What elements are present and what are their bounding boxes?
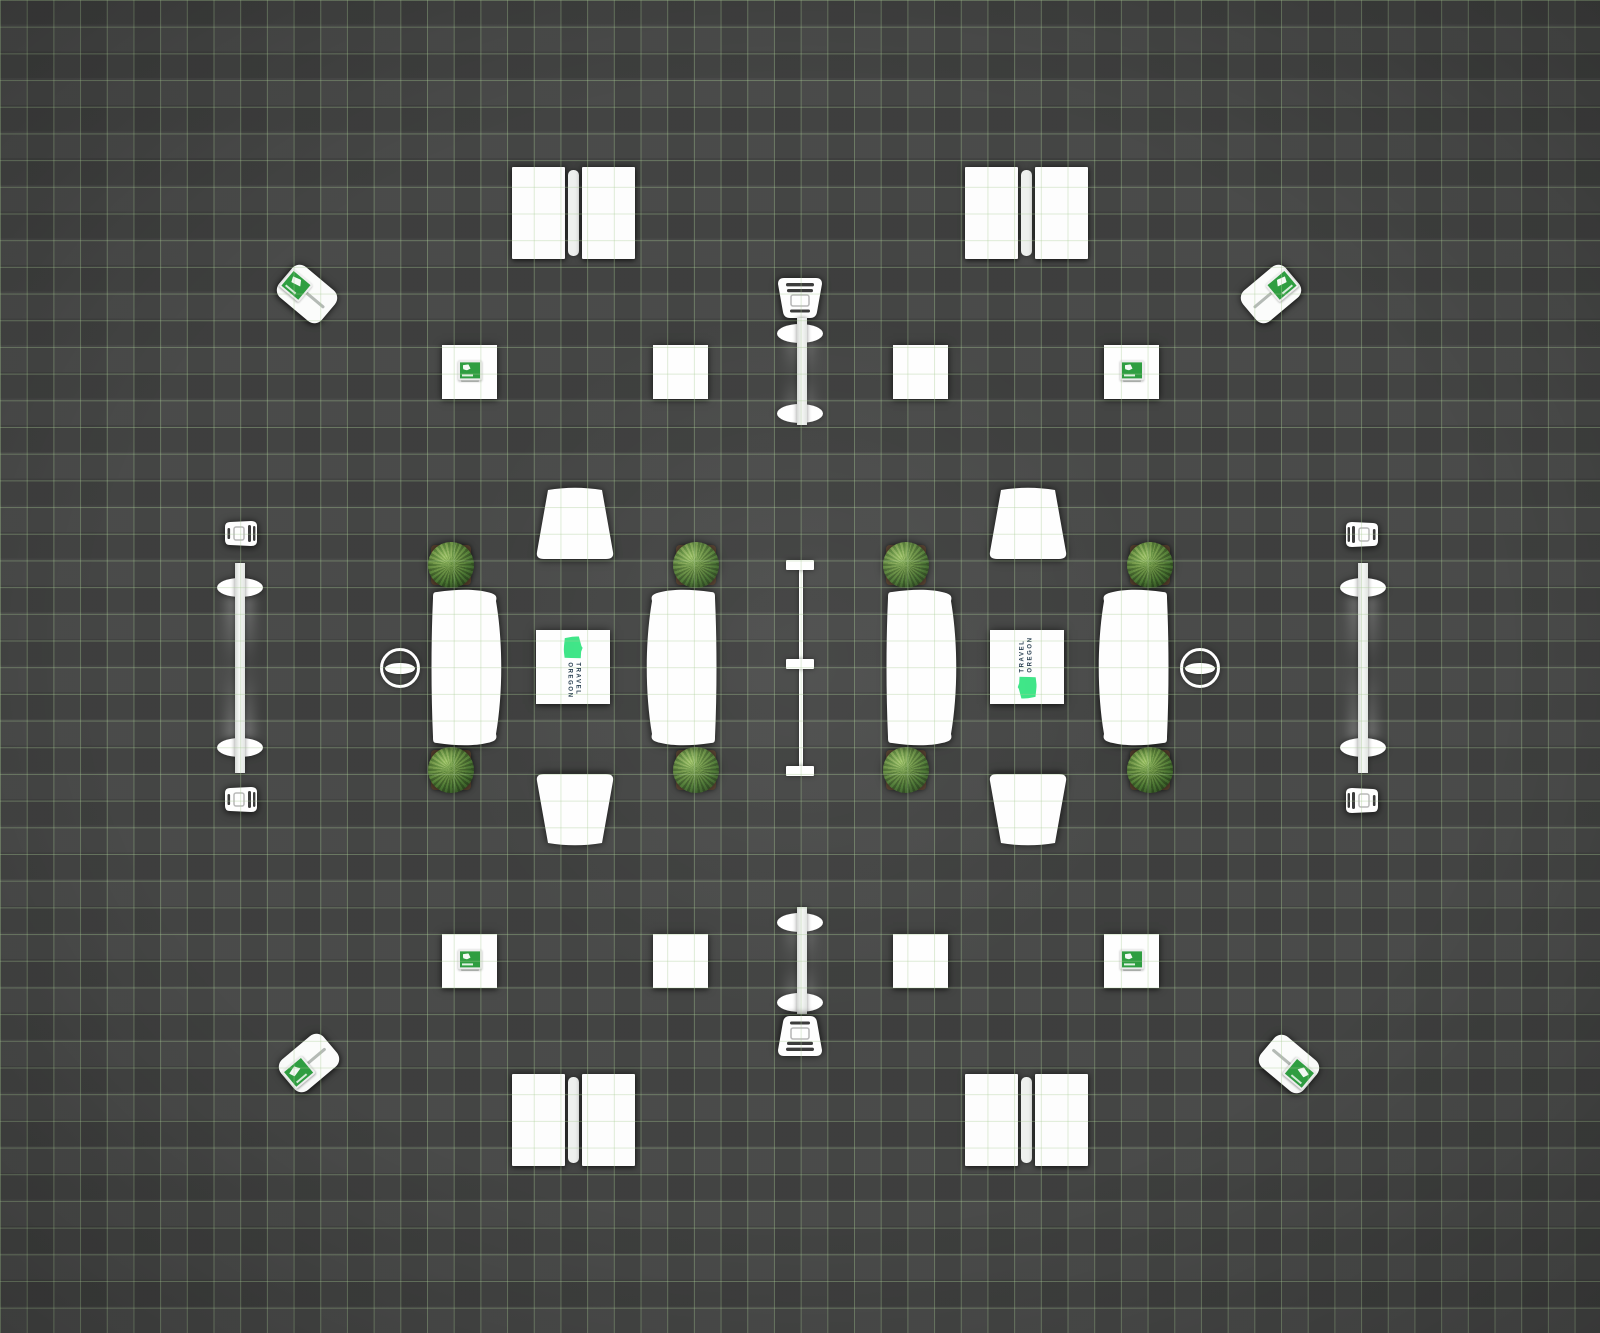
potted-bush[interactable] bbox=[1127, 542, 1173, 588]
bush-foliage bbox=[428, 747, 474, 793]
trapezoid-bench[interactable] bbox=[533, 773, 617, 845]
leaf-icon bbox=[1185, 663, 1215, 674]
divider-crossbar bbox=[786, 560, 814, 570]
potted-bush[interactable] bbox=[428, 542, 474, 588]
round-leaf-table[interactable] bbox=[1180, 648, 1220, 688]
display-panel-pair-top-right[interactable] bbox=[965, 167, 1088, 259]
travel-oregon-logo: TRAVEL OREGON bbox=[564, 636, 583, 698]
bush-foliage bbox=[673, 747, 719, 793]
side-chair[interactable] bbox=[1343, 521, 1383, 548]
logo-line2: OREGON bbox=[1027, 636, 1035, 672]
green-sign-icon bbox=[1120, 360, 1144, 380]
potted-bush[interactable] bbox=[883, 542, 929, 588]
bar-table[interactable] bbox=[1358, 563, 1368, 773]
logo-line1: TRAVEL bbox=[573, 662, 581, 698]
potted-bush[interactable] bbox=[428, 747, 474, 793]
display-panel bbox=[965, 1074, 1018, 1166]
display-panel bbox=[582, 167, 635, 259]
bar-table[interactable] bbox=[797, 318, 807, 425]
display-panel bbox=[1035, 167, 1088, 259]
logo-wordmark: TRAVEL OREGON bbox=[1020, 636, 1035, 672]
logo-wordmark: TRAVEL OREGON bbox=[566, 662, 581, 698]
bush-foliage bbox=[883, 747, 929, 793]
kiosk-stand-bottom-right[interactable] bbox=[1255, 1031, 1324, 1098]
kiosk-stand-bottom-left[interactable] bbox=[275, 1030, 344, 1097]
logo-line2: OREGON bbox=[566, 662, 574, 698]
potted-bush[interactable] bbox=[1127, 747, 1173, 793]
oregon-state-icon bbox=[1018, 676, 1037, 698]
logo-table[interactable]: TRAVEL OREGON bbox=[536, 630, 610, 704]
leaf-icon bbox=[385, 663, 415, 674]
curved-table[interactable] bbox=[645, 588, 721, 747]
travel-oregon-logo: TRAVEL OREGON bbox=[1018, 636, 1037, 698]
side-chair[interactable] bbox=[220, 786, 260, 813]
potted-bush[interactable] bbox=[673, 542, 719, 588]
bush-foliage bbox=[883, 542, 929, 588]
kiosk-stand-top-right[interactable] bbox=[1237, 261, 1306, 328]
trapezoid-bench[interactable] bbox=[986, 773, 1070, 845]
bush-foliage bbox=[428, 542, 474, 588]
trapezoid-bench[interactable] bbox=[986, 488, 1070, 560]
bush-foliage bbox=[1127, 747, 1173, 793]
kiosk-stand-top-left[interactable] bbox=[273, 261, 342, 328]
display-panel bbox=[1035, 1074, 1088, 1166]
display-panel-pair-bottom-right[interactable] bbox=[965, 1074, 1088, 1166]
divider-crossbar bbox=[786, 659, 814, 669]
chair[interactable] bbox=[776, 1014, 824, 1058]
green-sign-icon bbox=[458, 360, 482, 380]
bush-foliage bbox=[673, 542, 719, 588]
square-table[interactable] bbox=[893, 345, 948, 399]
bar-table[interactable] bbox=[797, 907, 807, 1014]
curved-table[interactable] bbox=[1097, 588, 1173, 747]
sign-table[interactable] bbox=[1104, 934, 1159, 988]
green-sign-icon bbox=[1120, 949, 1144, 969]
square-table[interactable] bbox=[653, 345, 708, 399]
display-panel bbox=[512, 167, 565, 259]
logo-line1: TRAVEL bbox=[1020, 636, 1028, 672]
trapezoid-bench[interactable] bbox=[533, 488, 617, 560]
green-sign-icon bbox=[458, 949, 482, 969]
round-leaf-table[interactable] bbox=[380, 648, 420, 688]
side-chair[interactable] bbox=[1343, 787, 1383, 814]
square-table[interactable] bbox=[653, 934, 708, 988]
floor-plan-canvas: TRAVEL OREGON TRAVEL OREGON bbox=[0, 0, 1600, 1333]
sign-table[interactable] bbox=[442, 934, 497, 988]
potted-bush[interactable] bbox=[883, 747, 929, 793]
sign-table[interactable] bbox=[442, 345, 497, 399]
display-panel bbox=[512, 1074, 565, 1166]
display-panel bbox=[965, 167, 1018, 259]
oregon-state-icon bbox=[564, 636, 583, 658]
panel-connector bbox=[568, 1077, 579, 1163]
curved-table[interactable] bbox=[882, 588, 958, 747]
panel-connector bbox=[1021, 1077, 1032, 1163]
chair[interactable] bbox=[776, 276, 824, 320]
potted-bush[interactable] bbox=[673, 747, 719, 793]
display-panel-pair-bottom-left[interactable] bbox=[512, 1074, 635, 1166]
display-panel-pair-top-left[interactable] bbox=[512, 167, 635, 259]
logo-table[interactable]: TRAVEL OREGON bbox=[990, 630, 1064, 704]
panel-connector bbox=[1021, 170, 1032, 256]
divider-crossbar bbox=[786, 766, 814, 776]
sign-table[interactable] bbox=[1104, 345, 1159, 399]
square-table[interactable] bbox=[893, 934, 948, 988]
side-chair[interactable] bbox=[220, 520, 260, 547]
bush-foliage bbox=[1127, 542, 1173, 588]
curved-table[interactable] bbox=[427, 588, 503, 747]
bar-table[interactable] bbox=[235, 563, 245, 773]
panel-connector bbox=[568, 170, 579, 256]
display-panel bbox=[582, 1074, 635, 1166]
